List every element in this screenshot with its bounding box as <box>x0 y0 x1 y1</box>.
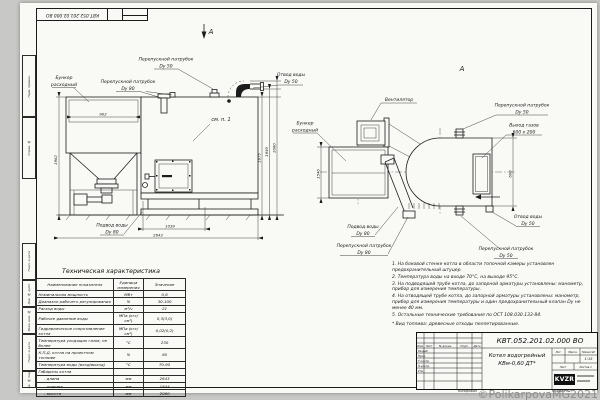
margin-label: Инв. № подл. <box>27 371 31 388</box>
tb-col-header: Изм. <box>417 344 424 348</box>
drawing-sheet: Перв. примен. Справ. № Подп. и дата Инв.… <box>20 3 597 393</box>
top-hopper <box>329 147 388 198</box>
margin-box: Инв. № подл. <box>22 371 36 388</box>
dim-base-length: 1039 <box>165 224 175 229</box>
scale-value: 1:15 <box>580 357 597 361</box>
logo-text-line <box>577 375 594 377</box>
top-bunker-label2: расходный <box>291 128 318 134</box>
table-row: Диапазон рабочего регулирования%30-100 <box>37 298 186 305</box>
top-bypass50-top-label: Перепускной патрубок <box>495 103 550 109</box>
spec-table-block: Техническая характеристика Наименование … <box>36 268 186 397</box>
note-item: 2. Температура воды на входе 70°С, на вы… <box>392 275 594 281</box>
tb-role: Т.контр. <box>418 359 430 363</box>
front-water-out-label: Отвод воды <box>277 72 306 78</box>
spec-col-header: Единица измерения <box>113 279 143 291</box>
lit-header: Лит. <box>552 350 565 354</box>
dim-hopper-height: 1962 <box>53 155 58 165</box>
top-bunker-label: Бункер <box>296 121 313 127</box>
front-bypass80-label: Перепускной патрубок <box>101 79 156 85</box>
dim-h-total: 2080 <box>272 143 277 153</box>
table-row: Температура воды (вход/выход)°С70-95 <box>37 361 186 368</box>
margin-label: Инв. № дубл. <box>27 283 31 304</box>
front-view: А <box>50 24 306 240</box>
front-bunker-label2: расходный <box>50 82 77 88</box>
table-row: - ширинамм1844 <box>37 383 186 390</box>
margin-box: Подп. и дата <box>22 243 36 280</box>
drawing-canvas: Перв. примен. Справ. № Подп. и дата Инв.… <box>0 0 600 400</box>
dim-hopper-width: 902 <box>99 112 107 117</box>
front-see-ref: см. п. 1 <box>211 117 230 123</box>
dim-h-body: 1875 <box>257 153 262 163</box>
tb-col-header: Подп. <box>457 344 472 348</box>
top-view-mark: А <box>459 65 465 73</box>
margin-box: Инв. № дубл. <box>22 280 36 307</box>
product-name-line2: КВм-0,60 ДТ* <box>483 361 551 367</box>
note-item: 4. На отводящей трубе котла, до запорной… <box>392 294 594 312</box>
front-view-arrow-letter: А <box>208 28 214 36</box>
table-row: Температура уходящих газов, не более°С23… <box>37 337 186 349</box>
section-arrow-icon: А <box>202 24 214 39</box>
spec-table-title: Техническая характеристика <box>36 268 186 275</box>
tb-role: Пров. <box>418 354 426 358</box>
front-bypass50-label2: Dy 50 <box>159 64 172 70</box>
front-bunker-label: Бункер <box>55 75 72 81</box>
top-bypass50-top-label2: Dy 50 <box>515 110 528 116</box>
top-water-out-label2: Dy 50 <box>521 221 534 227</box>
front-water-in-label2: Dy 80 <box>105 230 118 236</box>
note-item: 1. На боковой стенке котла в области топ… <box>392 262 594 274</box>
margin-box: Взам. инв. № <box>22 307 36 334</box>
tb-col-header: № докум. <box>434 344 457 348</box>
margin-box: Перв. примен. <box>22 55 36 117</box>
table-row: - высотамм2080 <box>37 390 186 397</box>
fan-label: Вентилятор <box>385 97 413 103</box>
scale-header: Масштаб <box>580 350 597 354</box>
tb-role: Разраб. <box>418 349 429 353</box>
spec-col-header: Значение <box>144 279 186 291</box>
front-bypass80-label2: Dy 80 <box>121 86 134 92</box>
manufacturer-logo: KVZR <box>554 374 575 385</box>
note-item: 5. Остальные технические требования по О… <box>392 313 594 319</box>
table-row: Габариты котла <box>37 368 186 375</box>
top-water-in-label: Подвод воды <box>347 224 379 230</box>
margin-label: Взам. инв. № <box>27 310 31 331</box>
tb-role: Утв. <box>418 369 424 373</box>
table-row: К.П.Д. котла на проектном топливе%80 <box>37 349 186 361</box>
top-bypass50-bot-label: Перепускной патрубок <box>479 246 534 252</box>
gas-out-label2: 600 x 200 <box>513 130 536 136</box>
top-view: А <box>291 65 550 259</box>
sheet-header: Лист <box>552 365 574 369</box>
title-block: КВТ.052.201.02.000 ВО Изм. Лист № докум.… <box>416 332 598 390</box>
tb-col-header: Лист <box>424 344 434 348</box>
title-doc-number: КВТ.052.201.02.000 ВО <box>483 336 597 345</box>
logo-text-line <box>577 380 590 382</box>
spec-col-header: Наименование показателя <box>37 279 114 291</box>
top-water-in-label2: Dy 80 <box>356 231 369 237</box>
table-row: Номинальная мощностьМВт0,6 <box>37 291 186 298</box>
margin-box: Справ. № <box>22 117 36 179</box>
top-bypass80-label2: Dy 80 <box>357 250 370 256</box>
top-boiler-body <box>406 129 500 215</box>
dim-gas-height: 600 <box>508 170 513 178</box>
margin-label: Подп. и дата <box>27 342 31 362</box>
fuel-note: * Вид топлива: древесные отходы пеллетир… <box>392 322 594 328</box>
table-row: Гидравлическое сопротивление котлаМПа (к… <box>37 324 186 336</box>
top-bypass80-label: Перепускной патрубок <box>337 243 392 249</box>
sheets-count: Листов 1 <box>574 365 597 369</box>
tb-col-header: Дата <box>472 344 482 348</box>
dim-depth: 1546 <box>316 169 321 179</box>
technical-notes: 1. На боковой стенке котла в области топ… <box>392 262 594 328</box>
spec-table: Наименование показателя Единица измерени… <box>36 278 186 397</box>
projection-views: А <box>36 14 592 266</box>
ground-hatch <box>66 215 250 220</box>
front-water-out-label2: Dy 50 <box>284 79 297 85</box>
water-outlet-elbow <box>236 84 250 97</box>
margin-label: Справ. № <box>27 140 31 155</box>
mass-header: Масса <box>565 350 580 354</box>
top-water-out-label: Отвод воды <box>514 214 543 220</box>
margin-label: Подп. и дата <box>27 251 31 271</box>
copied-label: Копировал <box>458 389 477 393</box>
front-bypass50-label: Перепускной патрубок <box>139 57 194 63</box>
margin-label: Перв. примен. <box>27 75 31 98</box>
margin-box: Подп. и дата <box>22 334 36 371</box>
dim-h-nozzle: 1939 <box>264 147 269 157</box>
top-bypass50-bot-label2: Dy 50 <box>499 253 512 259</box>
front-water-in-label: Подвод воды <box>96 223 128 229</box>
note-item: 3. На подводящей трубе котла, до запорно… <box>392 282 594 294</box>
table-row: Расход водым³/ч21 <box>37 305 186 312</box>
tb-role: Н.контр. <box>418 364 430 368</box>
product-name-line1: Котел водогрейный <box>483 353 551 359</box>
dim-total-length: 2643 <box>153 233 163 238</box>
table-row: - длинамм2643 <box>37 375 186 382</box>
table-row: Рабочее давление водыМПа (кгс/см²)0,3(3,… <box>37 312 186 324</box>
photo-watermark: ©PolikarpovaMG2021 <box>478 388 599 400</box>
gas-out-label: Выход газов <box>509 123 539 129</box>
